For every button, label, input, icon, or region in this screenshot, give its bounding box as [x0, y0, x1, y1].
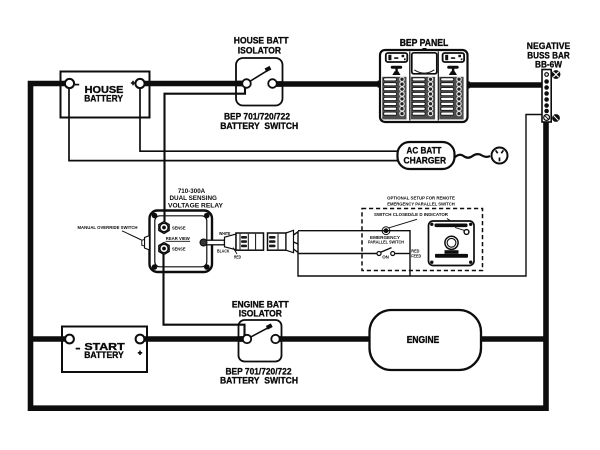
svg-text:CHARGER: CHARGER — [404, 156, 447, 166]
svg-text:DUAL SENSING: DUAL SENSING — [170, 195, 217, 202]
svg-text:BATTERY: BATTERY — [84, 94, 123, 104]
svg-text:SENSE: SENSE — [172, 247, 186, 252]
svg-text:ISOLATOR: ISOLATOR — [239, 309, 282, 319]
svg-text:REAR VIEW: REAR VIEW — [166, 236, 191, 241]
svg-text:BLACK: BLACK — [217, 249, 230, 254]
svg-text:WHITE: WHITE — [219, 231, 231, 236]
svg-text:BATTERY SWITCH: BATTERY SWITCH — [220, 376, 298, 386]
svg-text:EMERGENCY PARALLEL SWITCH: EMERGENCY PARALLEL SWITCH — [387, 202, 455, 207]
svg-text:ENGINE: ENGINE — [407, 335, 440, 346]
svg-text:ISOLATOR: ISOLATOR — [238, 46, 282, 56]
svg-text:BB-6W: BB-6W — [535, 60, 563, 70]
svg-text:SWITCH CLOSED/LE D INDICATOR: SWITCH CLOSED/LE D INDICATOR — [374, 212, 449, 217]
svg-text:FEED: FEED — [411, 253, 421, 258]
svg-text:ON: ON — [382, 254, 389, 259]
svg-text:BATTERY SWITCH: BATTERY SWITCH — [220, 121, 298, 131]
svg-text:MANUAL OVERRIDE SWITCH: MANUAL OVERRIDE SWITCH — [78, 225, 138, 230]
svg-text:SENSE: SENSE — [172, 226, 186, 231]
svg-text:VOLTAGE RELAY: VOLTAGE RELAY — [168, 202, 223, 209]
svg-text:HOUSE BATT: HOUSE BATT — [234, 36, 289, 46]
svg-text:BEP PANEL: BEP PANEL — [400, 38, 449, 49]
svg-text:OPTIONAL SETUP FOR REMOTE: OPTIONAL SETUP FOR REMOTE — [387, 196, 455, 201]
svg-text:BATTERY: BATTERY — [84, 350, 124, 360]
svg-text:RED: RED — [234, 255, 241, 260]
svg-text:AC BATT: AC BATT — [407, 146, 442, 156]
svg-text:PARALLEL SWITCH: PARALLEL SWITCH — [368, 240, 404, 245]
svg-text:BEP 701/720/722: BEP 701/720/722 — [224, 112, 290, 122]
